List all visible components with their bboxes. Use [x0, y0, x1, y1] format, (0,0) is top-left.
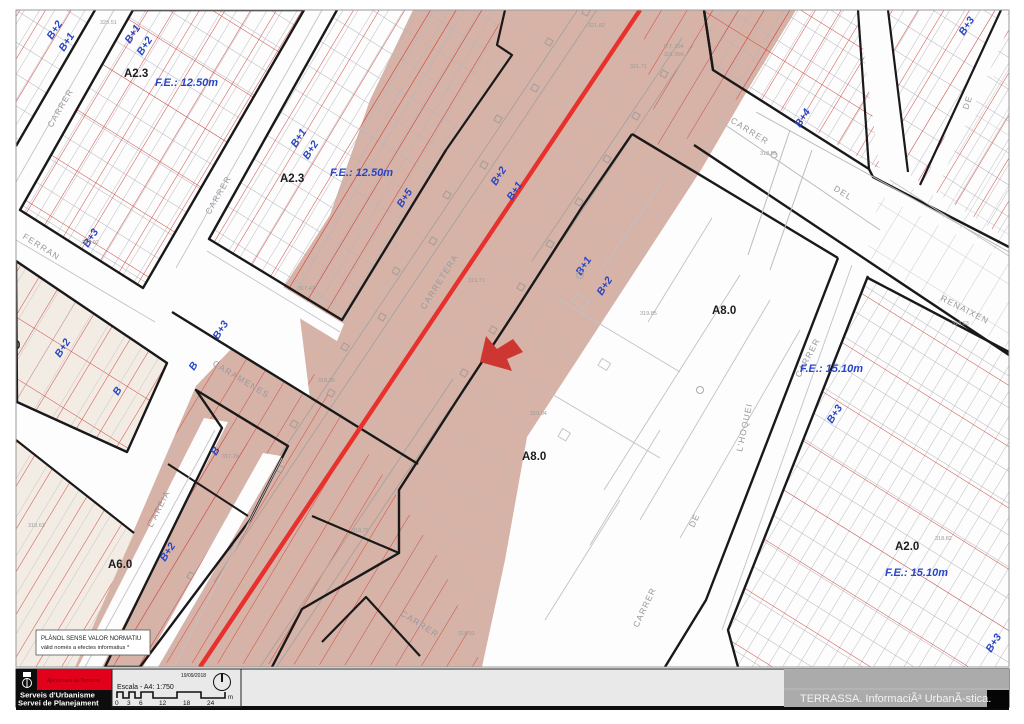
- svg-text:A6.0: A6.0: [108, 559, 132, 571]
- svg-text:TERRASSA. InformaciÃ³ UrbanÃ-s: TERRASSA. InformaciÃ³ UrbanÃ-stica.: [800, 692, 991, 705]
- svg-text:318.63: 318.63: [28, 523, 45, 529]
- svg-text:313.63: 313.63: [952, 321, 969, 327]
- svg-text:317.29: 317.29: [222, 454, 239, 460]
- svg-text:Servei de Planejament: Servei de Planejament: [18, 699, 99, 708]
- svg-text:A2.0: A2.0: [895, 541, 919, 553]
- svg-text:0: 0: [115, 700, 119, 707]
- svg-text:320.51: 320.51: [100, 20, 117, 26]
- svg-text:Escala - A4: 1:750: Escala - A4: 1:750: [117, 684, 174, 691]
- svg-text:317.92: 317.92: [82, 240, 99, 246]
- svg-text:12: 12: [159, 700, 167, 707]
- svg-text:A2.3: A2.3: [280, 173, 304, 185]
- svg-text:F.E.: 12.50m: F.E.: 12.50m: [155, 77, 218, 89]
- svg-text:6: 6: [139, 700, 143, 707]
- svg-text:vàlid només a efectes informat: vàlid només a efectes informatius *: [41, 645, 130, 651]
- svg-text:321.896: 321.896: [664, 52, 684, 58]
- svg-text:18: 18: [183, 700, 191, 707]
- svg-text:19/09/2018: 19/09/2018: [181, 673, 206, 679]
- svg-text:PLÀNOL SENSE VALOR NORMATIU: PLÀNOL SENSE VALOR NORMATIU: [41, 635, 141, 642]
- svg-text:318.93: 318.93: [458, 631, 475, 637]
- svg-text:F.E.: 15.10m: F.E.: 15.10m: [885, 567, 948, 579]
- svg-text:317.47: 317.47: [298, 286, 315, 292]
- svg-text:318.85: 318.85: [318, 378, 335, 384]
- svg-text:319.71: 319.71: [468, 278, 485, 284]
- svg-text:Ajuntament de Terrassa: Ajuntament de Terrassa: [47, 678, 100, 684]
- svg-text:318.75: 318.75: [352, 528, 369, 534]
- svg-text:A8.0: A8.0: [522, 451, 546, 463]
- svg-text:318.82: 318.82: [935, 536, 952, 542]
- svg-text:321.82: 321.82: [588, 23, 605, 29]
- svg-text:321.71: 321.71: [630, 64, 647, 70]
- svg-text:A8.0: A8.0: [712, 305, 736, 317]
- svg-text:V.T. 204: V.T. 204: [664, 44, 684, 50]
- svg-text:F.E.: 15.10m: F.E.: 15.10m: [800, 363, 863, 375]
- svg-text:24: 24: [207, 700, 215, 707]
- svg-text:A2.3: A2.3: [124, 68, 148, 80]
- svg-text:3: 3: [127, 700, 131, 707]
- svg-text:319.85: 319.85: [640, 311, 657, 317]
- svg-text:m: m: [228, 695, 233, 701]
- svg-text:0: 0: [14, 340, 20, 352]
- svg-text:F.E.: 12.50m: F.E.: 12.50m: [330, 167, 393, 179]
- svg-text:319.04: 319.04: [530, 411, 547, 417]
